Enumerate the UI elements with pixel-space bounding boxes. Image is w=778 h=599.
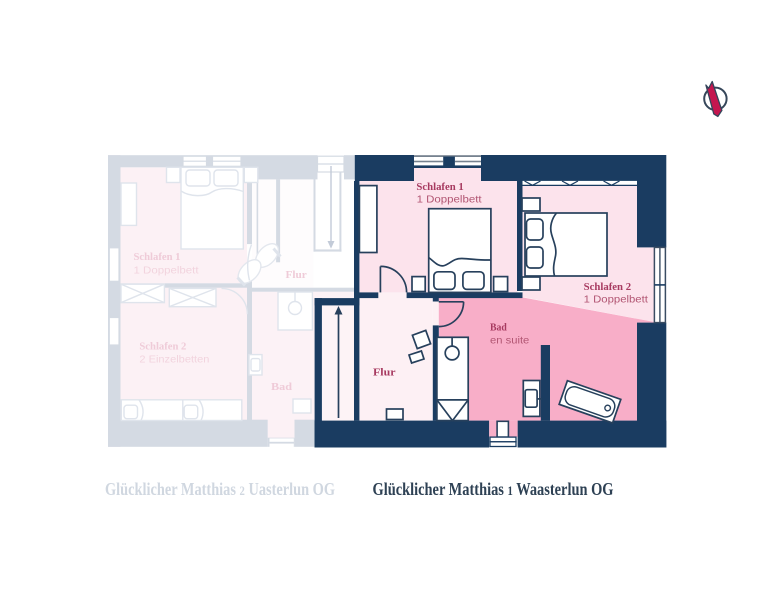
svg-text:Schlafen 2: Schlafen 2 bbox=[584, 282, 631, 293]
svg-text:Glücklicher Matthias 2 Uasterl: Glücklicher Matthias 2 Uasterlun OG bbox=[105, 479, 335, 499]
svg-text:en suite: en suite bbox=[490, 335, 529, 347]
svg-text:Schlafen 1: Schlafen 1 bbox=[416, 182, 463, 193]
svg-text:Bad: Bad bbox=[271, 382, 292, 393]
svg-text:Schlafen 2: Schlafen 2 bbox=[139, 342, 186, 353]
svg-text:1 Doppelbett: 1 Doppelbett bbox=[134, 265, 199, 277]
svg-text:1 Doppelbett: 1 Doppelbett bbox=[417, 194, 482, 206]
svg-text:Flur: Flur bbox=[286, 270, 308, 281]
svg-text:Bad: Bad bbox=[490, 323, 507, 334]
svg-text:Glücklicher Matthias 1 Waaster: Glücklicher Matthias 1 Waasterlun OG bbox=[373, 479, 614, 499]
svg-text:Schlafen 1: Schlafen 1 bbox=[134, 252, 181, 263]
svg-text:Flur: Flur bbox=[373, 368, 396, 379]
svg-text:1 Doppelbett: 1 Doppelbett bbox=[584, 294, 648, 306]
svg-text:2 Einzelbetten: 2 Einzelbetten bbox=[139, 354, 209, 366]
